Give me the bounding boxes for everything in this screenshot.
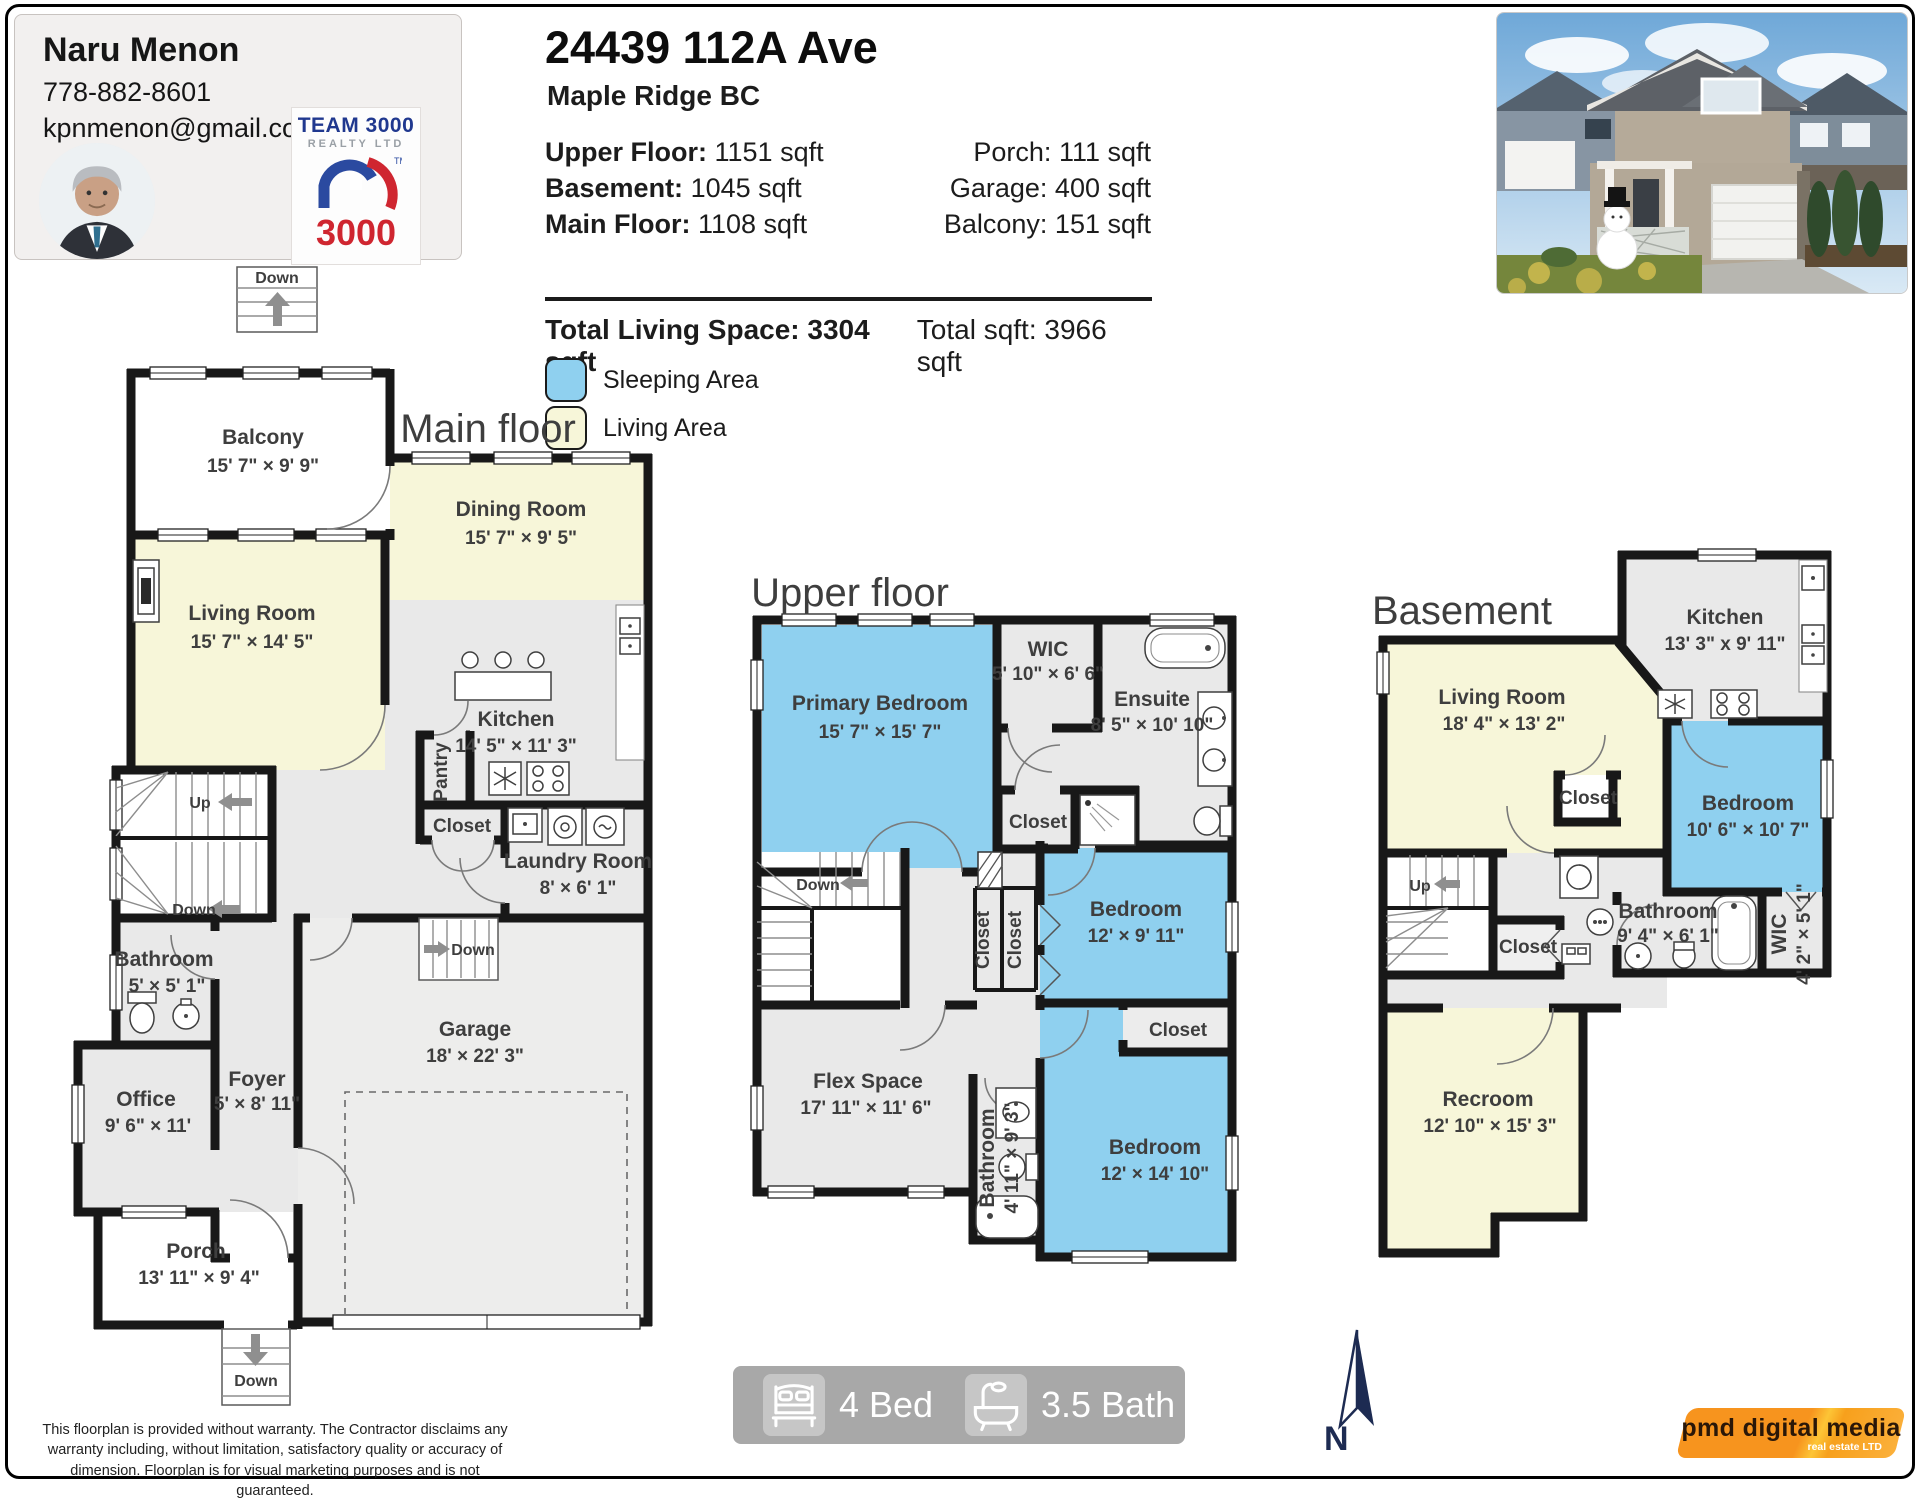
stat-label: Basement:	[545, 173, 683, 203]
stair-to-balcony: Down	[237, 267, 317, 332]
upper-floor-title: Upper floor	[751, 571, 949, 615]
garage-stairs: Down	[419, 918, 498, 980]
svg-text:Closet: Closet	[1149, 1020, 1208, 1041]
svg-text:Pantry: Pantry	[431, 742, 452, 802]
porch-stairs: Down	[222, 1329, 290, 1405]
svg-text:13' 11" × 9' 4": 13' 11" × 9' 4"	[138, 1268, 260, 1289]
svg-text:WIC: WIC	[1768, 914, 1791, 955]
brokerage-number: 3000	[292, 215, 420, 251]
svg-text:Down: Down	[172, 902, 216, 919]
svg-text:18' × 22' 3": 18' × 22' 3"	[426, 1046, 524, 1067]
svg-text:Garage: Garage	[439, 1018, 511, 1041]
basement-title: Basement	[1375, 589, 1552, 633]
svg-text:Kitchen: Kitchen	[477, 708, 554, 731]
stat-value: 151 sqft	[1055, 209, 1151, 239]
svg-text:8' × 6' 1": 8' × 6' 1"	[540, 878, 617, 899]
svg-text:Down: Down	[255, 270, 299, 287]
svg-text:Bathroom: Bathroom	[976, 1108, 999, 1207]
agent-avatar-illustration	[39, 143, 155, 259]
property-address: 24439 112A Ave	[545, 22, 878, 74]
kitchen-counter-sink	[616, 605, 644, 760]
stat-label: Main Floor:	[545, 209, 690, 239]
svg-text:14' 5" × 11' 3": 14' 5" × 11' 3"	[455, 736, 577, 757]
svg-text:12' × 14' 10": 12' × 14' 10"	[1101, 1164, 1209, 1185]
svg-text:Balcony: Balcony	[222, 426, 304, 449]
house-photo	[1496, 12, 1908, 294]
svg-text:10' 6" × 10' 7": 10' 6" × 10' 7"	[1687, 820, 1810, 841]
svg-text:Bathroom: Bathroom	[114, 948, 213, 971]
agent-phone: 778-882-8601	[43, 77, 211, 108]
kitchen-island	[455, 652, 551, 700]
svg-text:Bedroom: Bedroom	[1109, 1136, 1201, 1159]
compass-needle-icon	[1357, 1330, 1374, 1426]
svg-text:Office: Office	[116, 1088, 176, 1111]
stat-label: Garage:	[950, 173, 1048, 203]
brokerage-name: TEAM 3000	[292, 114, 420, 138]
svg-text:17' 11" × 11' 6": 17' 11" × 11' 6"	[800, 1098, 931, 1119]
laundry-appliances	[508, 808, 624, 845]
svg-text:Closet: Closet	[973, 910, 994, 969]
svg-text:Dining Room: Dining Room	[456, 498, 587, 521]
sqft-stats: Upper Floor: 1151 sqft Porch: 111 sqft B…	[545, 134, 1151, 242]
bath-count: 3.5 Bath	[1041, 1384, 1175, 1426]
svg-text:Living Room: Living Room	[1438, 686, 1565, 709]
svg-text:Flex Space: Flex Space	[813, 1070, 923, 1093]
svg-text:Porch: Porch	[166, 1240, 226, 1263]
svg-text:Closet: Closet	[1559, 788, 1618, 809]
agent-name: Naru Menon	[43, 31, 239, 70]
svg-text:Bedroom: Bedroom	[1090, 898, 1182, 921]
pmd-logo-subtitle: real estate LTD	[1808, 1441, 1883, 1453]
svg-text:Recroom: Recroom	[1442, 1088, 1533, 1111]
svg-text:Ensuite: Ensuite	[1114, 688, 1190, 711]
stat-value: 1108 sqft	[698, 209, 807, 239]
svg-text:9' 4" × 6' 1": 9' 4" × 6' 1"	[1617, 926, 1719, 947]
svg-text:Closet: Closet	[433, 816, 492, 837]
svg-text:8' 5" × 10' 10": 8' 5" × 10' 10"	[1091, 715, 1214, 736]
svg-text:Closet: Closet	[1499, 937, 1558, 958]
agent-email: kpnmenon@gmail.com	[43, 113, 320, 144]
stats-row: Basement: 1045 sqft Garage: 400 sqft	[545, 170, 1151, 206]
stat-label: Upper Floor:	[545, 137, 707, 167]
brokerage-subtitle: REALTY LTD	[292, 138, 420, 150]
main-floor-title: Main floor	[400, 407, 576, 451]
svg-text:12' 10" × 15' 3": 12' 10" × 15' 3"	[1423, 1116, 1556, 1137]
svg-text:12' × 9' 11": 12' × 9' 11"	[1088, 926, 1185, 947]
bed-icon-tile	[763, 1374, 825, 1436]
fireplace-icon	[133, 560, 159, 622]
compass-north-label: N	[1324, 1420, 1349, 1456]
svg-text:Bathroom: Bathroom	[1618, 900, 1717, 923]
basement-plan: Up Basement Living Room 18' 4" × 13' 2" …	[1375, 545, 1835, 1265]
stat-label: Porch:	[973, 137, 1051, 167]
svg-text:Bedroom: Bedroom	[1702, 792, 1794, 815]
svg-text:15' 7" × 9' 5": 15' 7" × 9' 5"	[465, 528, 577, 549]
svg-text:Down: Down	[451, 942, 495, 959]
svg-text:9' 6" × 11': 9' 6" × 11'	[105, 1116, 191, 1137]
bed-count: 4 Bed	[839, 1384, 933, 1426]
stat-value: 111 sqft	[1059, 137, 1151, 167]
summary-bar: 4 Bed 3.5 Bath	[733, 1366, 1185, 1444]
svg-text:5' 10" × 6' 6": 5' 10" × 6' 6"	[992, 664, 1104, 685]
property-city: Maple Ridge BC	[547, 80, 760, 112]
brokerage-house-icon: TM	[310, 150, 402, 212]
stat-value: 1045 sqft	[691, 173, 802, 203]
svg-text:Closet: Closet	[1009, 812, 1068, 833]
svg-text:Laundry Room: Laundry Room	[504, 850, 652, 873]
svg-text:15' 7" × 9' 9": 15' 7" × 9' 9"	[207, 456, 319, 477]
stove-icon	[527, 762, 569, 795]
svg-text:Living Room: Living Room	[188, 602, 315, 625]
svg-text:5' × 5' 1": 5' × 5' 1"	[129, 976, 206, 997]
svg-text:Kitchen: Kitchen	[1686, 606, 1763, 629]
stats-row: Upper Floor: 1151 sqft Porch: 111 sqft	[545, 134, 1151, 170]
main-floor-plan: Down Up Down	[60, 255, 680, 1415]
stat-label: Balcony:	[944, 209, 1048, 239]
fridge-icon	[489, 762, 521, 795]
upper-floor-plan: Down Upper floor Primary Bedroom 15' 7" …	[745, 565, 1245, 1275]
total-sqft-label: Total sqft:	[917, 314, 1037, 345]
svg-text:Up: Up	[189, 795, 211, 812]
svg-text:4' 2" × 5' 1": 4' 2" × 5' 1"	[1794, 883, 1815, 985]
svg-text:15' 7" × 15' 7": 15' 7" × 15' 7"	[819, 722, 942, 743]
svg-text:WIC: WIC	[1028, 638, 1069, 661]
agent-photo	[39, 143, 155, 259]
compass: N	[1302, 1326, 1412, 1456]
stat-value: 400 sqft	[1055, 173, 1151, 203]
svg-text:18' 4" × 13' 2": 18' 4" × 13' 2"	[1443, 714, 1566, 735]
house-photo-illustration	[1497, 13, 1907, 293]
svg-text:5' × 8' 11": 5' × 8' 11"	[214, 1094, 300, 1115]
pmd-logo-name: pmd digital media	[1676, 1414, 1906, 1443]
stat-value: 1151 sqft	[715, 137, 824, 167]
brokerage-logo: TEAM 3000 REALTY LTD TM 3000	[291, 107, 421, 265]
svg-text:13' 3" x 9' 11": 13' 3" x 9' 11"	[1664, 634, 1785, 655]
svg-text:Down: Down	[234, 1373, 278, 1390]
svg-text:Foyer: Foyer	[228, 1068, 285, 1091]
svg-text:Closet: Closet	[1005, 910, 1026, 969]
svg-text:Down: Down	[796, 877, 840, 894]
svg-text:15' 7" × 14' 5": 15' 7" × 14' 5"	[191, 632, 314, 653]
bed-icon	[763, 1374, 825, 1436]
disclaimer-text: This floorplan is provided without warra…	[40, 1420, 510, 1501]
svg-text:Up: Up	[1409, 878, 1431, 895]
stats-row: Main Floor: 1108 sqft Balcony: 151 sqft	[545, 206, 1151, 242]
svg-text:TM: TM	[394, 156, 402, 166]
bath-icon-tile	[965, 1374, 1027, 1436]
svg-text:4' 11" × 9' 3": 4' 11" × 9' 3"	[1002, 1102, 1023, 1213]
pmd-logo: pmd digital media real estate LTD	[1676, 1408, 1906, 1458]
agent-card: Naru Menon 778-882-8601 kpnmenon@gmail.c…	[14, 14, 462, 260]
bath-icon	[965, 1374, 1027, 1436]
svg-text:Primary Bedroom: Primary Bedroom	[792, 692, 968, 715]
